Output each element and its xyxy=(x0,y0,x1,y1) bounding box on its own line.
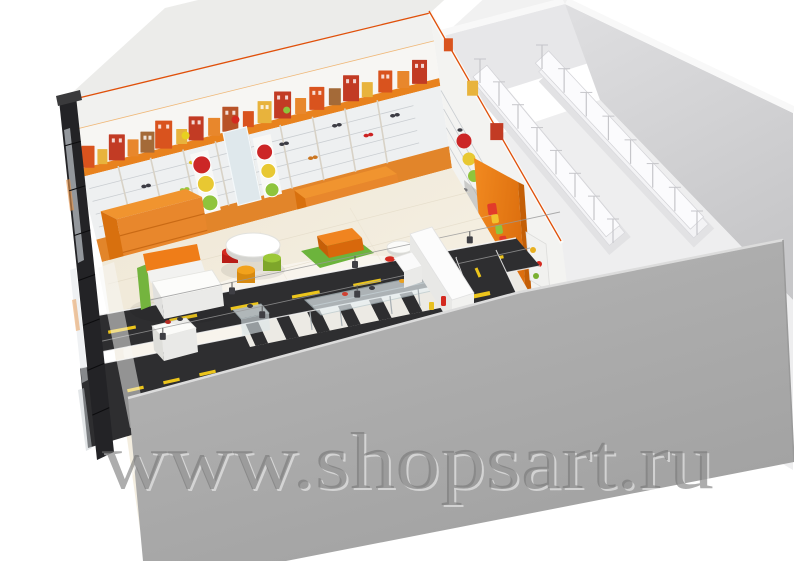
frieze-building xyxy=(189,116,204,140)
round-table-with-poufs xyxy=(221,233,285,283)
shelf-shoe xyxy=(395,113,400,117)
logo-letter xyxy=(491,214,499,224)
frieze-window xyxy=(112,138,115,142)
frieze-building xyxy=(208,118,220,136)
frieze-building xyxy=(362,82,373,97)
display-shoe xyxy=(369,286,375,290)
spotlight-icon xyxy=(354,291,360,298)
frieze-window xyxy=(421,64,424,68)
watermark: www.shopsart.ru www.shopsart.ru xyxy=(102,418,716,508)
frieze-building xyxy=(155,121,172,149)
partition-shoe xyxy=(457,128,462,132)
frieze-building xyxy=(258,101,272,123)
frieze-building xyxy=(397,71,409,88)
frieze-window xyxy=(353,79,356,83)
frieze-building xyxy=(82,146,95,168)
side-shelf-item xyxy=(533,273,539,279)
frieze-window xyxy=(166,125,169,129)
frieze-window xyxy=(198,120,201,124)
spotlight-icon xyxy=(229,287,235,294)
traffic-light-disc xyxy=(202,195,218,211)
spotlight-icon xyxy=(467,236,473,243)
hanging-shoe xyxy=(182,132,190,140)
shelf-shoe xyxy=(368,133,373,137)
frieze-window xyxy=(381,75,384,79)
shelf-shoe xyxy=(337,123,342,127)
shelf-shoe xyxy=(390,114,395,118)
frieze-building xyxy=(329,88,341,105)
partition-frieze-building xyxy=(444,38,453,51)
scene-svg: www.shopsart.ru www.shopsart.ru xyxy=(0,0,794,561)
frieze-building xyxy=(295,98,306,114)
traffic-light-disc xyxy=(193,156,211,174)
side-shelf-item xyxy=(530,247,536,253)
shelf-shoe xyxy=(284,141,289,145)
frieze-window xyxy=(415,64,418,68)
traffic-light-disc xyxy=(265,183,279,197)
frieze-window xyxy=(192,120,195,124)
spotlight-icon xyxy=(259,311,265,318)
frieze-building xyxy=(274,92,291,119)
round-table-top xyxy=(226,233,280,257)
spotlight-icon xyxy=(352,261,358,268)
frieze-window xyxy=(148,136,151,140)
frieze-building xyxy=(128,139,139,156)
frieze-building xyxy=(412,60,427,84)
logo-letter xyxy=(487,203,498,216)
traffic-light-disc xyxy=(261,163,276,178)
shelf-shoe xyxy=(308,156,313,160)
pouf-green xyxy=(263,254,281,272)
frieze-window xyxy=(266,105,269,109)
decor-disc-red xyxy=(457,134,472,149)
frieze-building xyxy=(97,149,107,164)
frieze-building xyxy=(309,87,324,110)
shelf-shoe xyxy=(141,185,146,189)
frieze-window xyxy=(143,136,146,140)
shelf-shoe xyxy=(364,134,369,138)
store-render: www.shopsart.ru www.shopsart.ru xyxy=(0,0,794,561)
shelf-shoe xyxy=(279,142,284,146)
display-shoe xyxy=(247,304,253,308)
decor-disc-yellow xyxy=(463,153,476,166)
traffic-light-disc xyxy=(257,144,273,160)
frieze-window xyxy=(119,138,122,142)
frieze-building xyxy=(378,71,392,93)
frieze-building xyxy=(109,134,125,160)
frieze-window xyxy=(285,96,288,100)
frieze-building xyxy=(243,111,254,127)
frieze-window xyxy=(225,111,228,115)
frieze-window xyxy=(277,96,280,100)
partition-frieze-building xyxy=(490,123,503,140)
frieze-window xyxy=(158,125,161,129)
frieze-building xyxy=(140,132,154,153)
frieze-window xyxy=(386,75,389,79)
frieze-window xyxy=(318,91,321,95)
yellow-prop xyxy=(429,302,434,310)
partition-frieze-building xyxy=(467,81,478,96)
shelf-shoe xyxy=(146,184,151,188)
small-table-top xyxy=(387,241,413,253)
traffic-light-disc xyxy=(197,175,214,192)
frieze-window xyxy=(312,91,315,95)
hanging-shoe xyxy=(283,107,290,114)
shelf-shoe xyxy=(332,124,337,128)
spotlight-icon xyxy=(160,333,166,340)
shelf-shoe xyxy=(313,155,318,159)
fire-extinguisher xyxy=(441,296,446,306)
frieze-window xyxy=(261,105,264,109)
display-shoe xyxy=(342,292,348,296)
watermark-text: www.shopsart.ru xyxy=(102,418,714,506)
small-pouf-red xyxy=(385,256,395,262)
frieze-window xyxy=(346,79,349,83)
frieze-window xyxy=(232,111,235,115)
hanging-shoe xyxy=(231,116,239,124)
frieze-building xyxy=(343,75,359,101)
